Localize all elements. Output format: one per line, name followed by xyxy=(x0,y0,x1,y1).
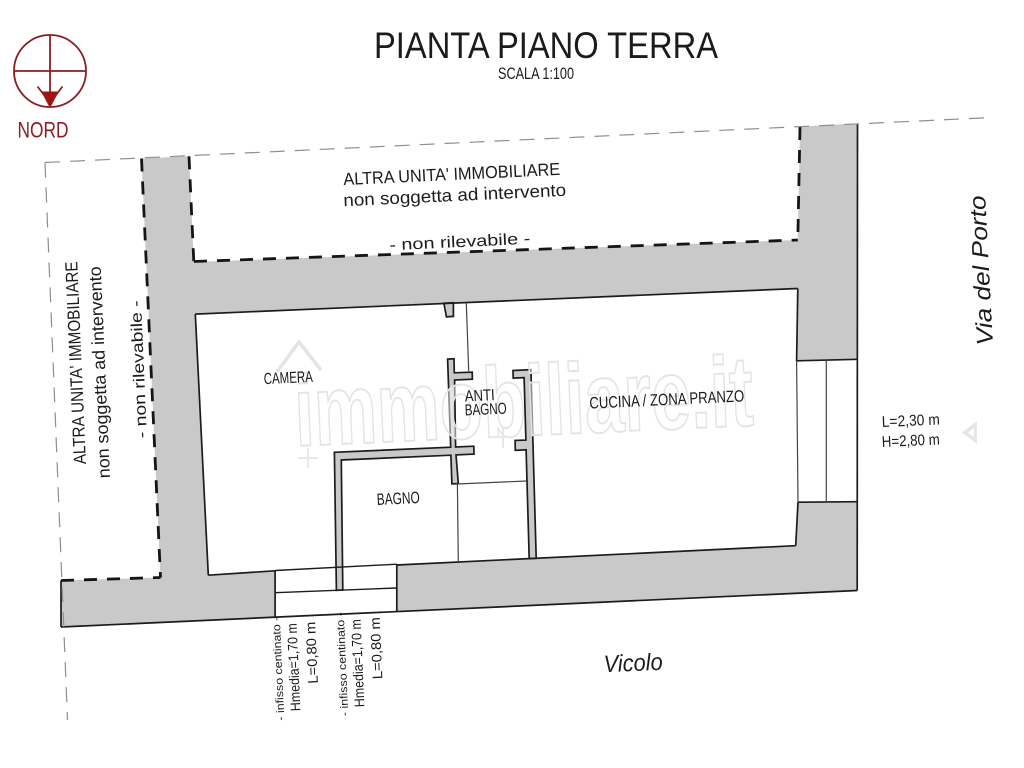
svg-text:CAMERA: CAMERA xyxy=(263,369,313,388)
svg-text:SCALA 1:100: SCALA 1:100 xyxy=(498,65,574,83)
svg-text:H=2,80 m: H=2,80 m xyxy=(881,431,940,451)
svg-text:L=0,80 m: L=0,80 m xyxy=(367,617,386,680)
svg-text:Vicolo: Vicolo xyxy=(603,649,663,679)
svg-text:NORD: NORD xyxy=(18,118,69,143)
svg-text:BAGNO: BAGNO xyxy=(376,489,420,509)
svg-text:PIANTA PIANO TERRA: PIANTA PIANO TERRA xyxy=(374,25,718,66)
svg-text:BAGNO: BAGNO xyxy=(464,401,507,420)
svg-text:Hmedia=1,70 m: Hmedia=1,70 m xyxy=(284,623,304,712)
svg-text:Via del Porto: Via del Porto xyxy=(964,195,998,346)
svg-text:L=0,80 m: L=0,80 m xyxy=(302,621,321,684)
svg-text:L=2,30 m: L=2,30 m xyxy=(881,411,940,431)
svg-text:Hmedia=1,70 m: Hmedia=1,70 m xyxy=(348,619,368,708)
